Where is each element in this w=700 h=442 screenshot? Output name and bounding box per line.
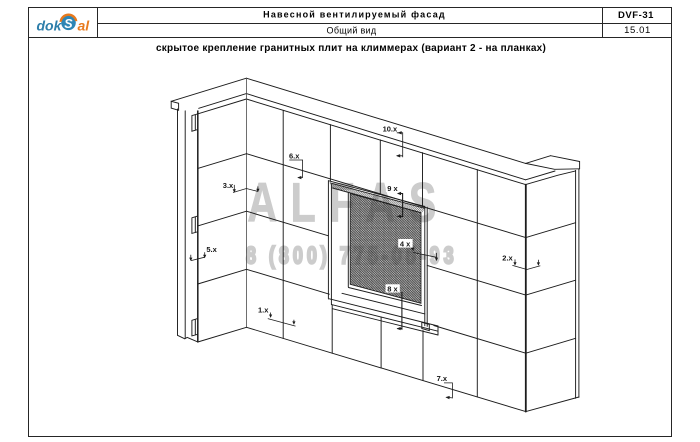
svg-text:1.x: 1.x [258,305,269,314]
svg-text:6.x: 6.x [289,152,300,161]
svg-text:10.x: 10.x [383,124,398,133]
svg-text:5.x: 5.x [206,245,217,254]
svg-text:9 x: 9 x [387,184,398,193]
svg-text:7.x: 7.x [437,374,448,383]
svg-text:3.x: 3.x [223,181,234,190]
svg-text:4 x: 4 x [400,240,411,249]
svg-text:2.x: 2.x [502,253,513,262]
svg-text:8 x: 8 x [387,284,398,293]
